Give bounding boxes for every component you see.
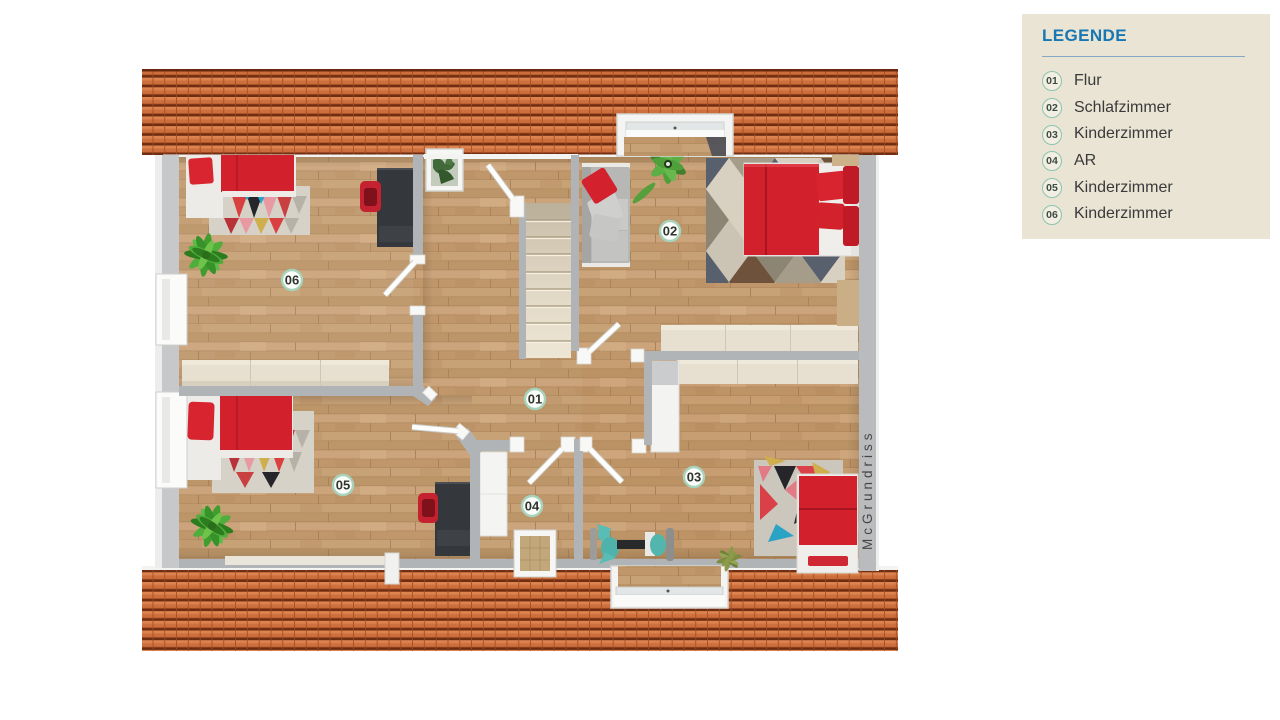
svg-text:03: 03 — [687, 470, 701, 485]
svg-text:02: 02 — [663, 224, 677, 239]
svg-text:01: 01 — [528, 392, 542, 407]
svg-text:McGrundriss: McGrundriss — [860, 429, 875, 550]
svg-text:05: 05 — [336, 478, 350, 493]
svg-text:06: 06 — [285, 273, 299, 288]
svg-text:04: 04 — [525, 499, 540, 514]
